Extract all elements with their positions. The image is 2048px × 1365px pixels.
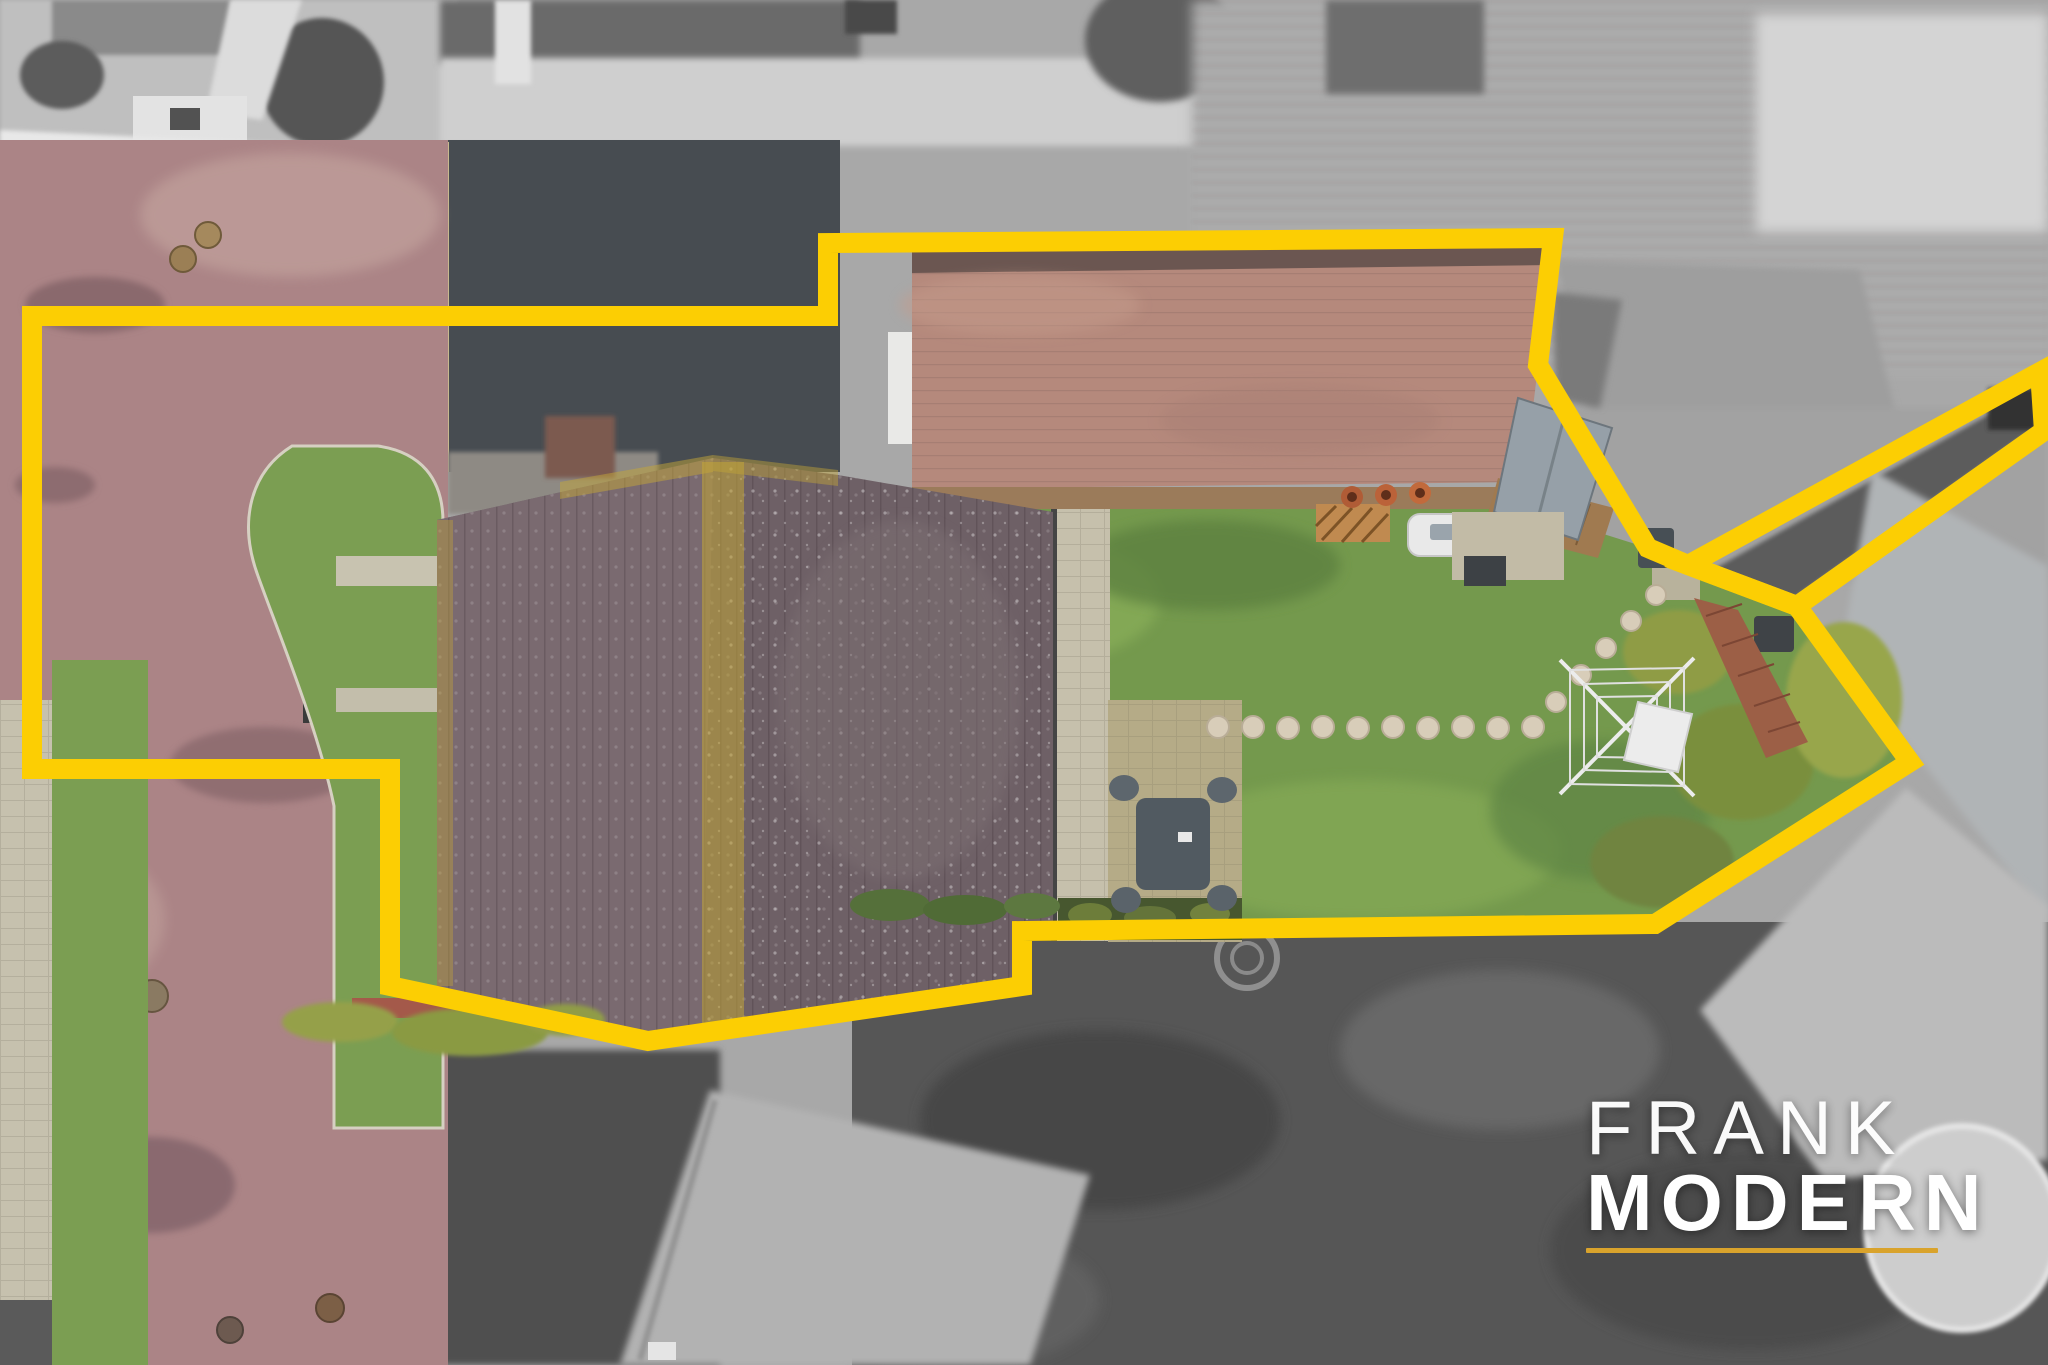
shrub-3 [1786, 622, 1902, 778]
stepping-stone-d1 [1546, 692, 1566, 712]
watermark-line1: FRANK [1586, 1094, 1990, 1164]
verge-slab-1 [336, 556, 442, 586]
stepping-stone-r3 [1277, 717, 1299, 739]
lawn-dark-1 [1080, 520, 1340, 610]
chair-1 [1109, 775, 1139, 801]
stepping-stone-d3 [1596, 638, 1616, 658]
white-door [888, 332, 912, 444]
manhole-5 [316, 1294, 344, 1322]
brown-shed-bit [545, 416, 615, 478]
left-gravel [0, 1300, 52, 1365]
chair-3 [1111, 887, 1141, 913]
pot-3-center [1415, 488, 1425, 498]
stepping-stone-r7 [1417, 717, 1439, 739]
top-right-light-pave [1756, 14, 2048, 232]
slab-path-texture [1056, 509, 1110, 941]
watermark-underline [1586, 1248, 1938, 1253]
stepping-stone-d4 [1621, 611, 1641, 631]
stepping-stone-r4 [1312, 716, 1334, 738]
pot-2-center [1381, 490, 1391, 500]
border-bush-2 [923, 895, 1007, 925]
top-paving [440, 58, 1200, 146]
pot-1-center [1347, 492, 1357, 502]
garden-table [1136, 798, 1210, 890]
ridge-lichen [702, 462, 744, 1036]
front-plants-1 [282, 1002, 398, 1042]
top-garage-dark [845, 0, 897, 34]
watermark-line2: MODERN [1586, 1170, 1990, 1236]
manhole-4 [217, 1317, 243, 1343]
manhole-2 [195, 222, 221, 248]
rear-roof-mottle-2 [1160, 385, 1440, 455]
agency-watermark: FRANK MODERN [1586, 1094, 1990, 1253]
rear-roof-mottle-1 [900, 275, 1140, 335]
verge-slab-2 [336, 688, 442, 712]
left-edge-lichen [437, 520, 453, 986]
stepping-stone-r10 [1522, 716, 1544, 738]
stepping-stone-r8 [1452, 716, 1474, 738]
bottom-white-object [648, 1342, 676, 1360]
shed-window [170, 108, 200, 130]
stepping-stone-d5 [1646, 585, 1666, 605]
top-right-dark-roof [1326, 0, 1484, 94]
border-bush-1 [850, 889, 930, 921]
chair-2 [1207, 777, 1237, 803]
chair-4 [1207, 885, 1237, 911]
bin-2 [1754, 616, 1794, 652]
stepping-stone-r9 [1487, 717, 1509, 739]
hedge-ball [20, 41, 104, 109]
aerial-photo: FRANK MODERN [0, 0, 2048, 1365]
table-paper [1178, 832, 1192, 842]
border-bush-3 [1004, 893, 1060, 919]
main-roof-sheen [780, 520, 1020, 880]
left-footpath-texture [0, 700, 52, 1330]
bbq-grill [1464, 556, 1506, 586]
stepping-stone-r2 [1242, 716, 1264, 738]
top-white-path [495, 0, 531, 84]
stepping-stone-r1 [1207, 716, 1229, 738]
manhole-1 [170, 246, 196, 272]
stepping-stone-r6 [1382, 716, 1404, 738]
stepping-stone-r5 [1347, 717, 1369, 739]
